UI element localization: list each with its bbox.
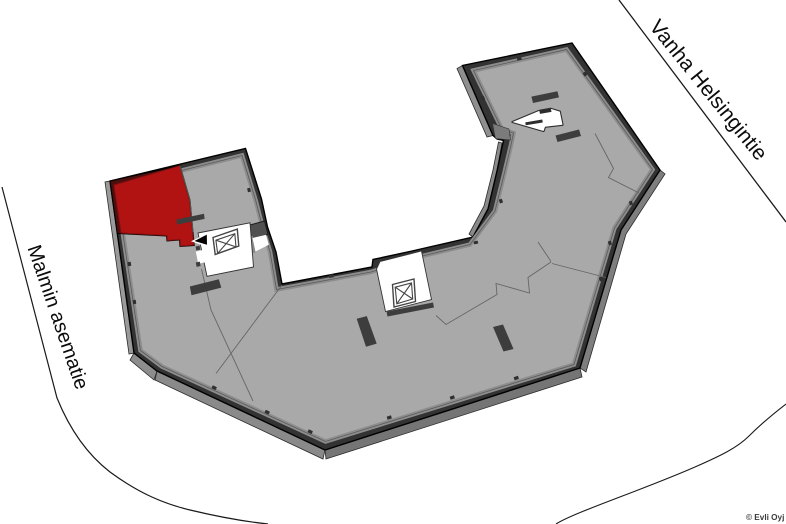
svg-text:© Evli Oyj: © Evli Oyj — [746, 513, 784, 522]
